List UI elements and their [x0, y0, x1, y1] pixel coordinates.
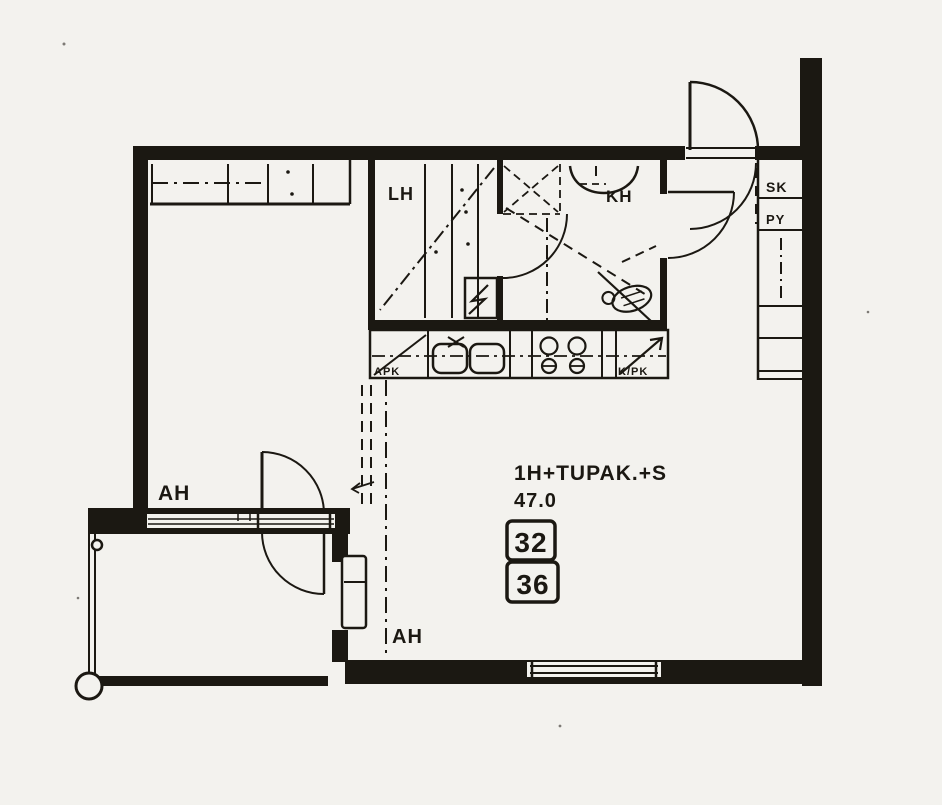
- shower-cross-line: [504, 166, 558, 212]
- speck: [63, 43, 66, 46]
- balcony: [76, 534, 328, 699]
- unit-number-top: 32: [514, 527, 547, 558]
- bathroom-door-swing-arc: [668, 192, 734, 258]
- column-large: [76, 673, 102, 699]
- column-small: [92, 540, 102, 550]
- room-label-living: AH: [392, 626, 423, 648]
- door-swing-arc-outer: [262, 532, 324, 594]
- dot-mark: [464, 210, 468, 214]
- dot-mark: [460, 188, 464, 192]
- hinge-dot: [290, 192, 294, 196]
- radiator-body: [342, 556, 366, 628]
- apartment-layout-label: 1H+TUPAK.+S: [514, 462, 667, 485]
- sauna-door-swing-arc: [503, 214, 567, 278]
- kitchen-label-apk: APK: [374, 366, 400, 378]
- kitchen: APK K/PK: [370, 330, 668, 378]
- room-label-bedroom: AH: [158, 482, 190, 505]
- kitchen-label-kpk: K/PK: [618, 366, 648, 378]
- toilet-bowl: [609, 281, 654, 316]
- wall-top-left-segment: [133, 146, 685, 160]
- room-label-bathroom: KH: [606, 187, 633, 206]
- radiator: [342, 556, 366, 628]
- closet-label-py: PY: [766, 212, 785, 227]
- living-room-window: [526, 661, 662, 678]
- floor-plan-drawing: SK PY APK K/PK LH KH AH AH 1H+TUPAK.+S 4…: [0, 0, 942, 800]
- window-frame: [526, 661, 662, 678]
- sauna-wall-upper: [497, 160, 503, 214]
- sink-basin-icon: [470, 344, 504, 373]
- apartment-area-label: 47.0: [514, 490, 557, 512]
- apartment-info: 1H+TUPAK.+S 47.0 32 36: [507, 462, 667, 602]
- room-label-sauna: LH: [388, 184, 414, 204]
- door-opening-gap: [659, 194, 668, 258]
- bathroom: [368, 160, 734, 330]
- bathroom-kitchen-wall: [368, 320, 666, 330]
- unit-number-bottom: 36: [516, 569, 549, 600]
- hinge-dot: [286, 170, 290, 174]
- burner-icon: [569, 338, 586, 355]
- railing-bottom: [88, 676, 328, 686]
- shower-cross-line: [504, 166, 558, 212]
- closet-label-sk: SK: [766, 179, 787, 195]
- floor-slope-dashed: [506, 208, 648, 296]
- partition-wall: [368, 160, 375, 330]
- scan-specks: [63, 43, 870, 728]
- floor-slope-dashed: [622, 246, 656, 262]
- door-swing-arc-inner: [690, 163, 756, 229]
- bedroom-partition: [352, 160, 375, 505]
- closet-column: SK PY: [758, 160, 802, 380]
- wall-left: [133, 146, 148, 512]
- wall-right-upper-extension: [800, 58, 822, 150]
- door-swing-arc-inner: [262, 452, 324, 514]
- speck: [867, 311, 870, 314]
- bedroom-closets: [150, 160, 350, 204]
- window-frame: [146, 513, 336, 529]
- wall-living-left-lower: [332, 630, 348, 662]
- sink-basin-icon: [433, 344, 467, 373]
- wall-right: [802, 146, 822, 686]
- toilet-detail: [621, 291, 642, 298]
- balcony-window-band: [146, 513, 336, 529]
- speck: [559, 725, 562, 728]
- speck: [77, 597, 80, 600]
- burner-icon: [541, 338, 558, 355]
- entry-door: [686, 82, 758, 229]
- dot-mark: [466, 242, 470, 246]
- shower-area: [503, 164, 560, 214]
- floor-plan: SK PY APK K/PK LH KH AH AH 1H+TUPAK.+S 4…: [0, 0, 942, 805]
- door-swing-arc: [690, 82, 758, 150]
- dot-mark: [434, 250, 438, 254]
